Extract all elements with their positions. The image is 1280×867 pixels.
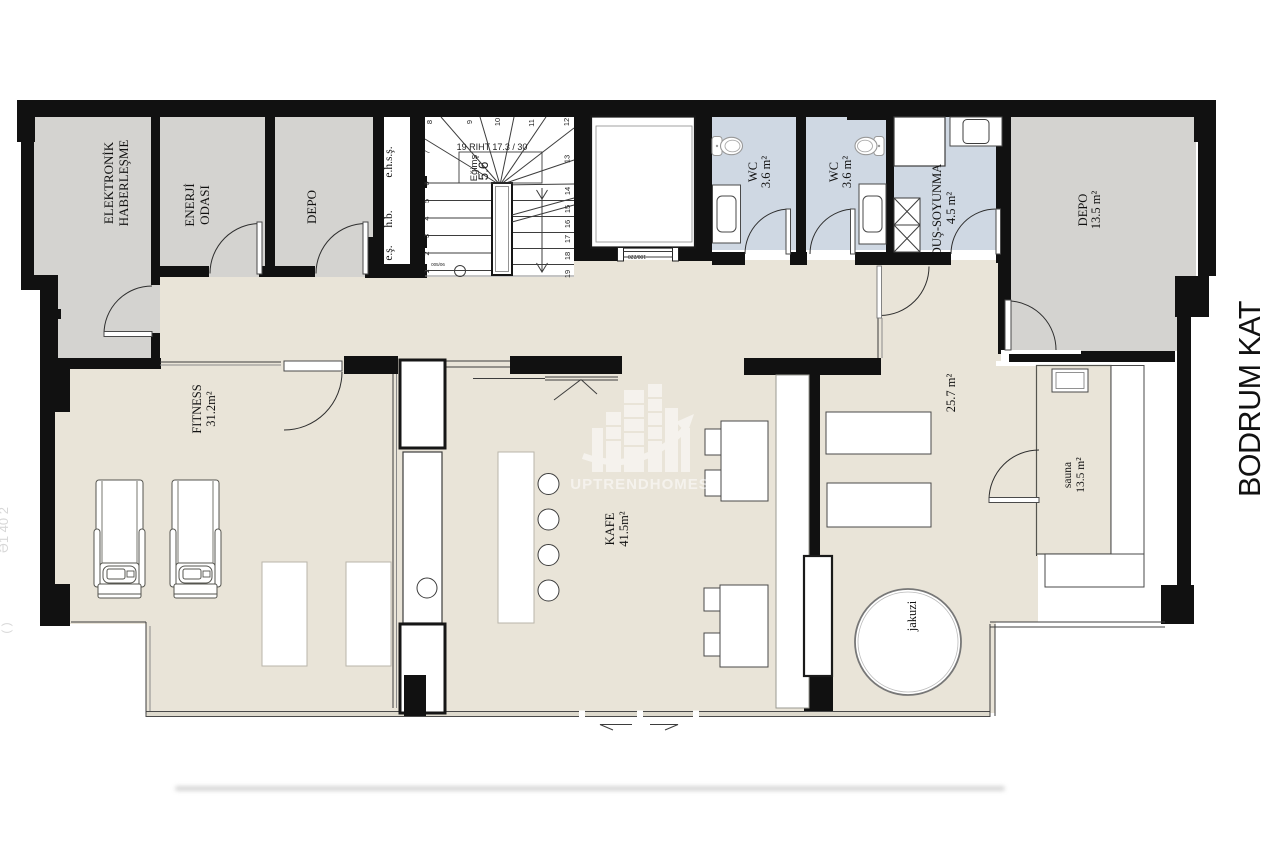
svg-text:4.5 m²: 4.5 m²	[944, 192, 958, 224]
svg-text:ODASI: ODASI	[197, 185, 212, 225]
svg-text:15: 15	[563, 205, 572, 213]
svg-text:e.ş.: e.ş.	[383, 245, 395, 260]
svg-text:FITNESS: FITNESS	[190, 384, 204, 433]
svg-text:18: 18	[563, 252, 572, 260]
svg-text:7: 7	[423, 150, 432, 154]
svg-text:DEPO: DEPO	[304, 190, 319, 224]
svg-text:DEPO: DEPO	[1076, 194, 1090, 227]
svg-text:6: 6	[422, 181, 431, 185]
svg-text:13.5 m²: 13.5 m²	[1089, 191, 1103, 230]
svg-text:4: 4	[422, 216, 431, 220]
svg-text:( ): ( )	[0, 622, 13, 633]
svg-text:ELEKTRONİK: ELEKTRONİK	[101, 141, 116, 224]
svg-text:WC: WC	[827, 162, 841, 182]
svg-text:8: 8	[425, 120, 434, 124]
svg-text:005/06: 005/06	[431, 262, 445, 267]
svg-text:41.5m²: 41.5m²	[617, 511, 631, 547]
svg-text:BODRUM KAT: BODRUM KAT	[1233, 301, 1267, 497]
svg-text:ENERJİ: ENERJİ	[182, 183, 197, 226]
svg-text:17: 17	[563, 235, 572, 243]
svg-text:e.h.s.ş.: e.h.s.ş.	[383, 146, 395, 177]
svg-text:11: 11	[527, 119, 536, 127]
svg-text:12: 12	[562, 118, 571, 126]
svg-text:UPTRENDHOMES: UPTRENDHOMES	[570, 476, 710, 493]
svg-text:16: 16	[563, 220, 572, 228]
svg-text:25.7 m²: 25.7 m²	[944, 374, 958, 413]
svg-text:5.6: 5.6	[476, 162, 491, 181]
svg-text:2: 2	[422, 251, 431, 255]
svg-text:19 RIHT 17.3 / 30: 19 RIHT 17.3 / 30	[457, 142, 528, 152]
svg-text:3: 3	[422, 234, 431, 238]
svg-text:sauna: sauna	[1062, 462, 1074, 488]
svg-text:HABERLEŞME: HABERLEŞME	[116, 140, 131, 227]
svg-text:jakuzi: jakuzi	[905, 600, 919, 632]
svg-text:9: 9	[465, 120, 474, 124]
svg-text:19: 19	[563, 270, 572, 278]
svg-text:31.2m²: 31.2m²	[204, 391, 218, 427]
svg-text:100/220: 100/220	[628, 253, 646, 259]
svg-text:13.5 m²: 13.5 m²	[1075, 457, 1087, 493]
svg-text:Ə1 40 2: Ə1 40 2	[0, 507, 11, 553]
svg-text:DUŞ-SOYUNMA: DUŞ-SOYUNMA	[930, 164, 944, 256]
svg-text:14: 14	[563, 187, 572, 195]
svg-text:3.6 m²: 3.6 m²	[840, 156, 854, 188]
svg-text:WC: WC	[746, 162, 760, 182]
svg-text:10: 10	[493, 118, 502, 126]
svg-text:3.6 m²: 3.6 m²	[759, 156, 773, 188]
svg-text:13: 13	[563, 155, 572, 163]
svg-text:5: 5	[422, 199, 431, 203]
svg-text:1: 1	[422, 269, 431, 273]
svg-text:KAFE: KAFE	[603, 512, 617, 545]
svg-text:h.b.: h.b.	[383, 210, 395, 227]
